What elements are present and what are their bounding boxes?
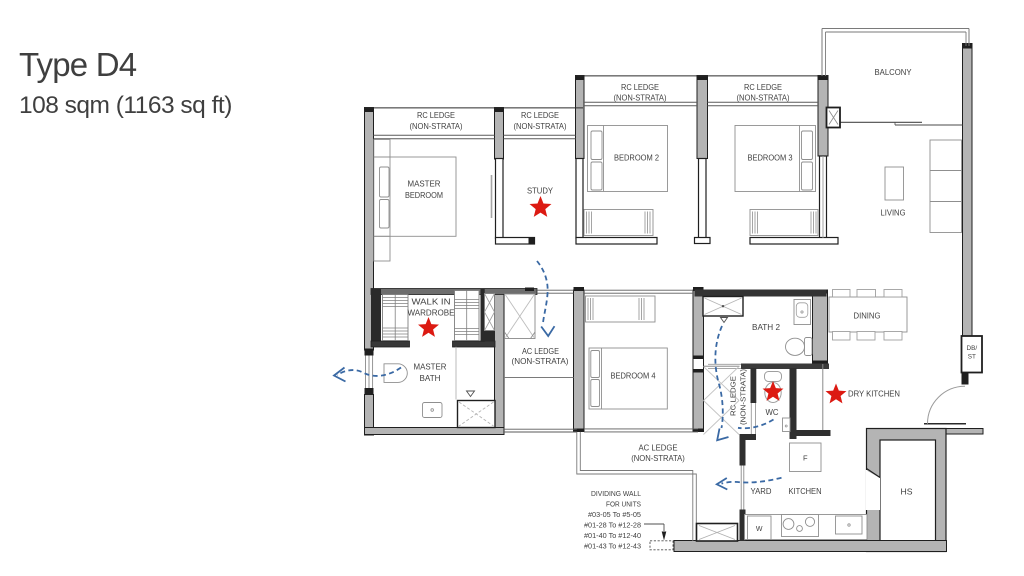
svg-text:RC LEDGE: RC LEDGE [621,83,659,92]
svg-text:RC LEDGE: RC LEDGE [417,111,455,120]
svg-text:AC LEDGE: AC LEDGE [522,347,559,356]
svg-text:(NON-STRATA): (NON-STRATA) [614,94,667,103]
svg-text:KITCHEN: KITCHEN [789,487,822,496]
svg-text:MASTER: MASTER [408,179,441,189]
svg-text:Type D4: Type D4 [19,46,137,83]
svg-text:DINING: DINING [854,311,881,321]
svg-text:ST: ST [968,354,976,361]
svg-text:YARD: YARD [751,487,772,496]
svg-text:BEDROOM 3: BEDROOM 3 [748,153,793,163]
svg-text:F: F [803,454,808,463]
svg-text:#01-43 To #12-43: #01-43 To #12-43 [584,542,641,551]
svg-text:BATH 2: BATH 2 [752,323,780,332]
svg-text:STUDY: STUDY [527,186,553,196]
svg-text:DIVIDING WALL: DIVIDING WALL [591,489,641,498]
svg-text:LIVING: LIVING [881,208,906,218]
svg-text:WALK IN: WALK IN [412,298,451,307]
svg-text:#03-05 To #5-05: #03-05 To #5-05 [588,510,641,519]
svg-text:RC LEDGE: RC LEDGE [521,111,559,120]
svg-text:RC LEDGE: RC LEDGE [744,83,782,92]
svg-text:#01-28 To #12-28: #01-28 To #12-28 [584,521,641,530]
svg-text:(NON-STRATA): (NON-STRATA) [514,122,567,131]
svg-text:W: W [756,526,763,533]
svg-text:BALCONY: BALCONY [875,67,912,77]
svg-text:AC LEDGE: AC LEDGE [639,444,679,453]
svg-text:(NON-STRATA): (NON-STRATA) [737,94,790,103]
svg-text:WC: WC [766,408,779,417]
svg-text:(NON-STRATA): (NON-STRATA) [410,122,463,131]
svg-text:(NON-STRATA): (NON-STRATA) [631,454,685,463]
svg-text:(NON-STRATA): (NON-STRATA) [739,369,748,425]
svg-text:BEDROOM 2: BEDROOM 2 [614,153,659,163]
svg-text:MASTER: MASTER [414,363,447,372]
svg-text:#01-40 To #12-40: #01-40 To #12-40 [584,531,641,540]
svg-text:DB/: DB/ [966,345,977,352]
svg-text:BEDROOM 4: BEDROOM 4 [611,371,656,381]
svg-text:DRY KITCHEN: DRY KITCHEN [848,390,900,399]
svg-text:(NON-STRATA): (NON-STRATA) [512,357,569,366]
svg-text:BATH: BATH [420,374,441,383]
svg-text:108 sqm (1163 sq ft): 108 sqm (1163 sq ft) [19,92,232,119]
svg-text:WARDROBE: WARDROBE [408,309,456,318]
svg-text:RC LEDGE: RC LEDGE [729,376,738,416]
svg-text:HS: HS [901,487,913,497]
svg-text:FOR UNITS: FOR UNITS [606,500,641,509]
svg-text:BEDROOM: BEDROOM [405,190,443,200]
